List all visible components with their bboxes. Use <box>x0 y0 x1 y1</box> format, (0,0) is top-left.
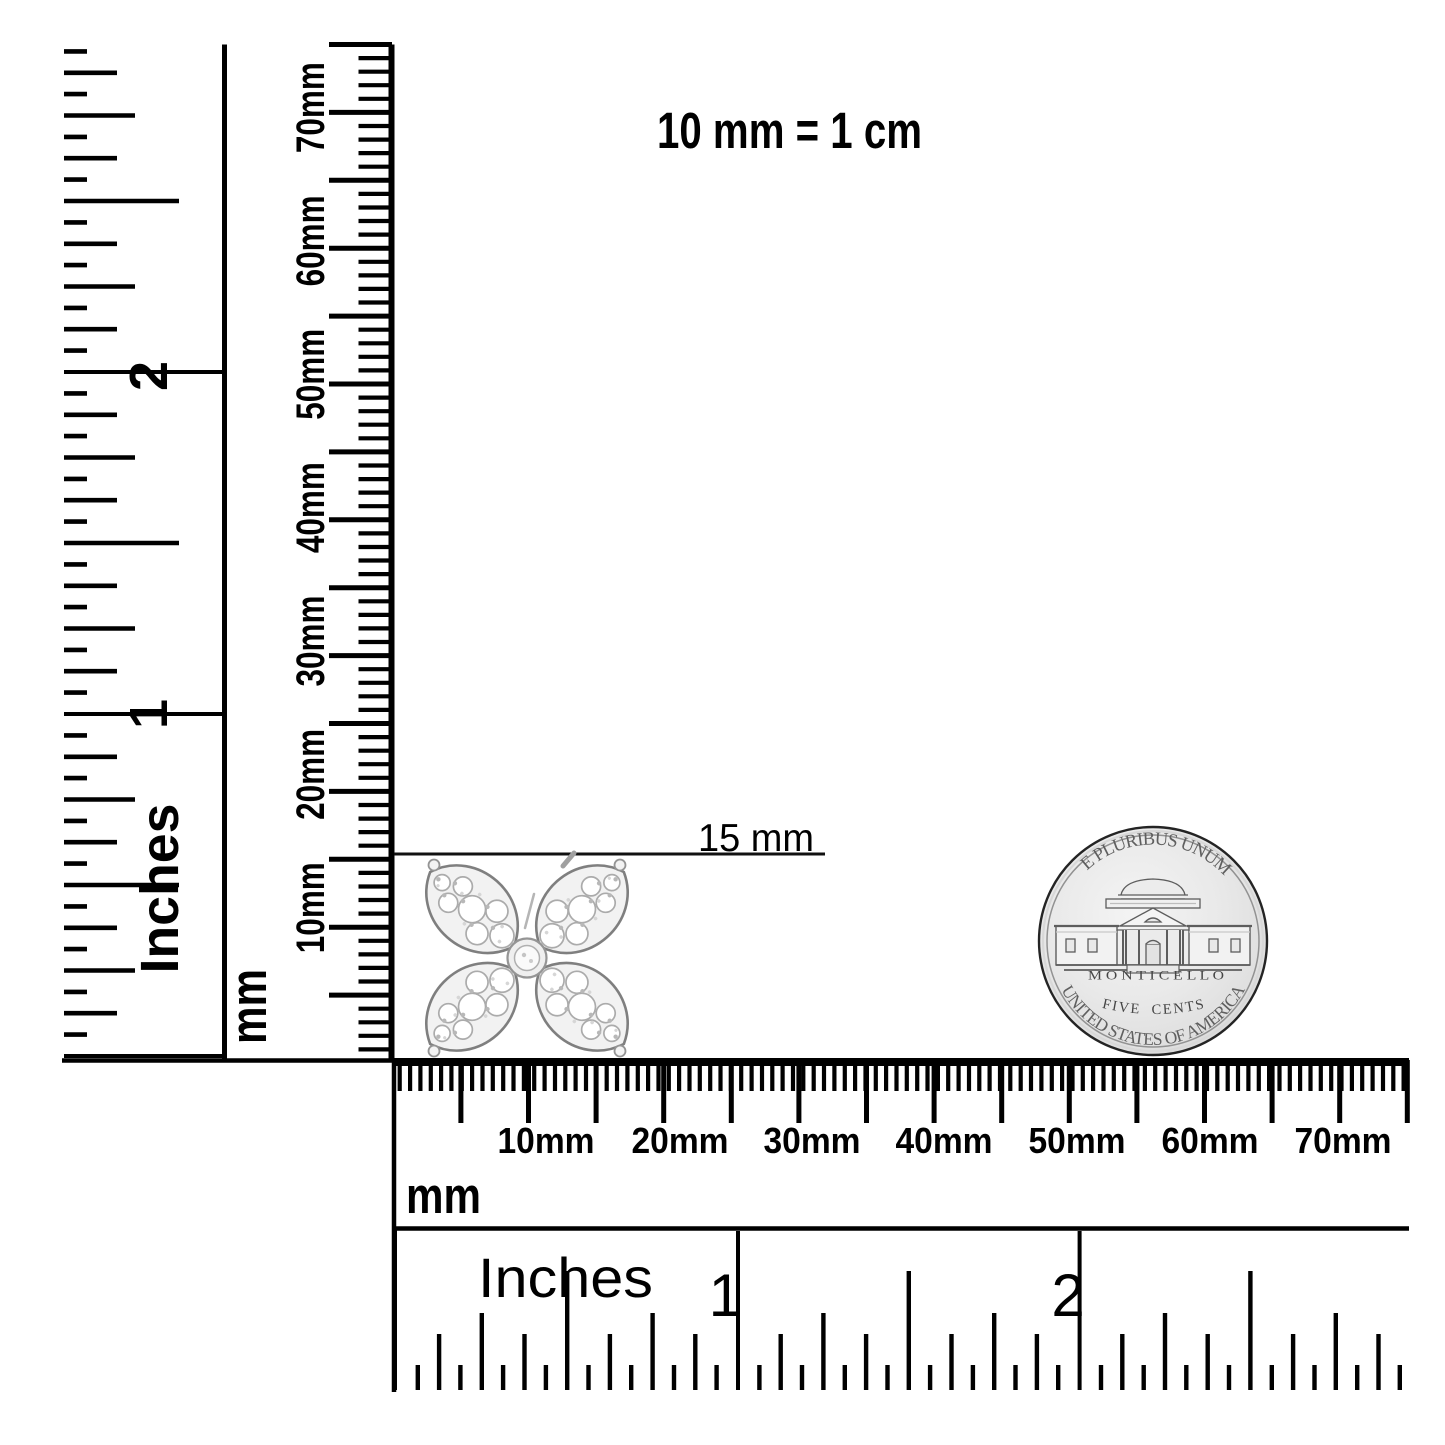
svg-text:2: 2 <box>119 361 179 391</box>
svg-text:mm: mm <box>406 1167 481 1224</box>
svg-text:1: 1 <box>119 699 179 729</box>
svg-text:10mm: 10mm <box>498 1120 595 1161</box>
svg-text:50mm: 50mm <box>289 329 333 420</box>
svg-text:15 mm: 15 mm <box>698 817 814 860</box>
svg-text:20mm: 20mm <box>289 729 333 820</box>
svg-text:1: 1 <box>709 1262 742 1329</box>
svg-text:M O N T I C E L L O: M O N T I C E L L O <box>1088 969 1224 983</box>
svg-text:40mm: 40mm <box>289 462 333 553</box>
svg-text:Inches: Inches <box>130 804 190 974</box>
svg-text:mm: mm <box>220 969 277 1044</box>
svg-text:60mm: 60mm <box>289 195 333 286</box>
svg-text:30mm: 30mm <box>764 1120 861 1161</box>
svg-text:70mm: 70mm <box>289 62 333 153</box>
svg-text:70mm: 70mm <box>1295 1120 1392 1161</box>
svg-text:50mm: 50mm <box>1029 1120 1126 1161</box>
svg-text:40mm: 40mm <box>896 1120 993 1161</box>
svg-text:60mm: 60mm <box>1162 1120 1259 1161</box>
svg-text:10mm: 10mm <box>289 862 333 953</box>
svg-text:10 mm = 1 cm: 10 mm = 1 cm <box>657 102 922 159</box>
svg-text:20mm: 20mm <box>632 1120 729 1161</box>
svg-text:30mm: 30mm <box>289 596 333 687</box>
svg-text:Inches: Inches <box>478 1246 653 1309</box>
svg-text:2: 2 <box>1051 1262 1084 1329</box>
